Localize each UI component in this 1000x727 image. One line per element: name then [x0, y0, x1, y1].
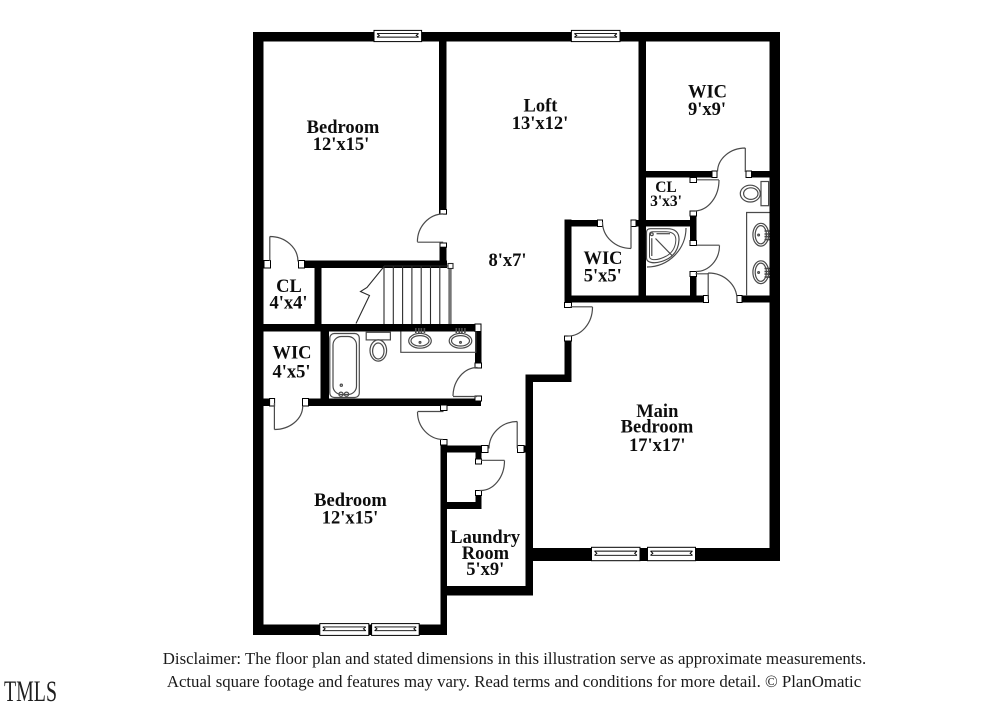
svg-text:12'x15': 12'x15' [313, 135, 370, 155]
svg-text:8'x7': 8'x7' [488, 251, 526, 271]
svg-text:17'x17': 17'x17' [629, 436, 686, 456]
svg-text:4'x5': 4'x5' [272, 363, 310, 383]
svg-text:3'x3': 3'x3' [650, 193, 682, 210]
svg-text:12'x15': 12'x15' [322, 509, 379, 529]
svg-text:Bedroom: Bedroom [621, 418, 694, 438]
svg-text:13'x12': 13'x12' [512, 114, 569, 134]
svg-text:Disclaimer: The floor plan and: Disclaimer: The floor plan and stated di… [163, 649, 866, 668]
svg-text:Actual square footage and feat: Actual square footage and features may v… [167, 672, 861, 691]
svg-text:9'x9': 9'x9' [688, 100, 726, 120]
svg-text:TMLS: TMLS [4, 676, 57, 708]
svg-text:5'x9': 5'x9' [466, 560, 504, 580]
svg-text:4'x4': 4'x4' [269, 294, 307, 314]
svg-text:WIC: WIC [272, 344, 311, 364]
svg-text:5'x5': 5'x5' [584, 267, 622, 287]
